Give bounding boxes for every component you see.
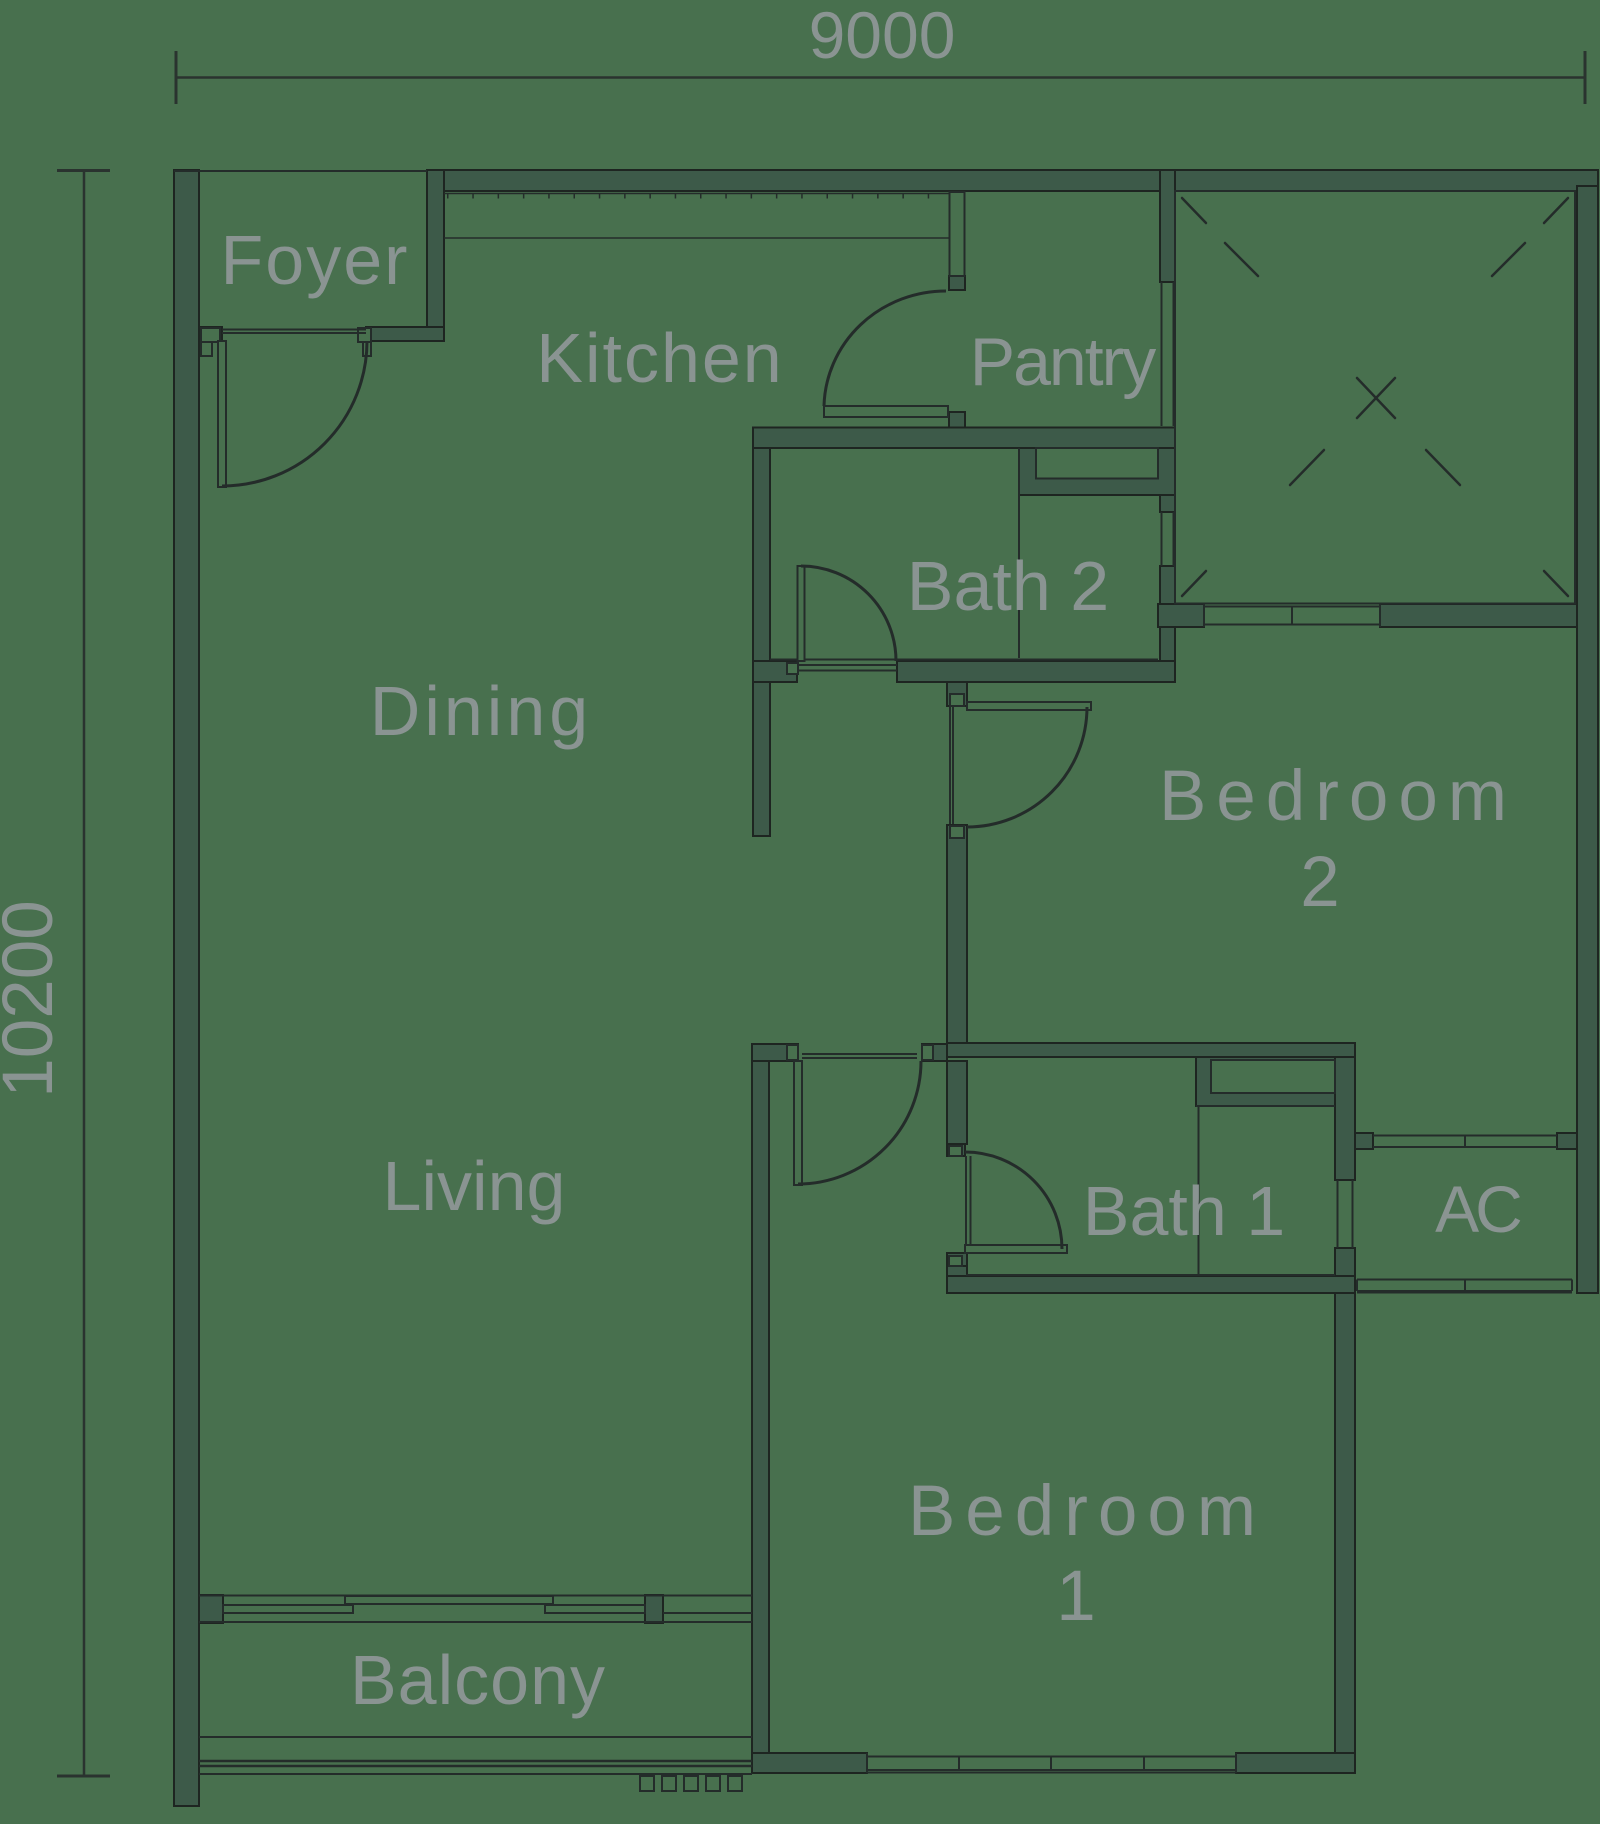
svg-text:Balcony: Balcony: [350, 1641, 606, 1719]
svg-text:Kitchen: Kitchen: [536, 319, 783, 397]
svg-text:AC: AC: [1435, 1172, 1521, 1246]
svg-text:Foyer: Foyer: [221, 221, 410, 299]
svg-text:2: 2: [1300, 843, 1340, 922]
svg-text:Bath 1: Bath 1: [1083, 1172, 1285, 1250]
svg-text:Pantry: Pantry: [970, 324, 1157, 400]
svg-text:Bath 2: Bath 2: [907, 547, 1109, 625]
svg-text:9000: 9000: [809, 0, 956, 72]
svg-text:Bedroom: Bedroom: [1159, 757, 1517, 836]
svg-text:Dining: Dining: [370, 672, 592, 750]
svg-text:1: 1: [1056, 1557, 1096, 1636]
svg-text:Bedroom: Bedroom: [908, 1472, 1266, 1551]
svg-text:Living: Living: [383, 1147, 566, 1225]
svg-text:10200: 10200: [0, 900, 68, 1097]
